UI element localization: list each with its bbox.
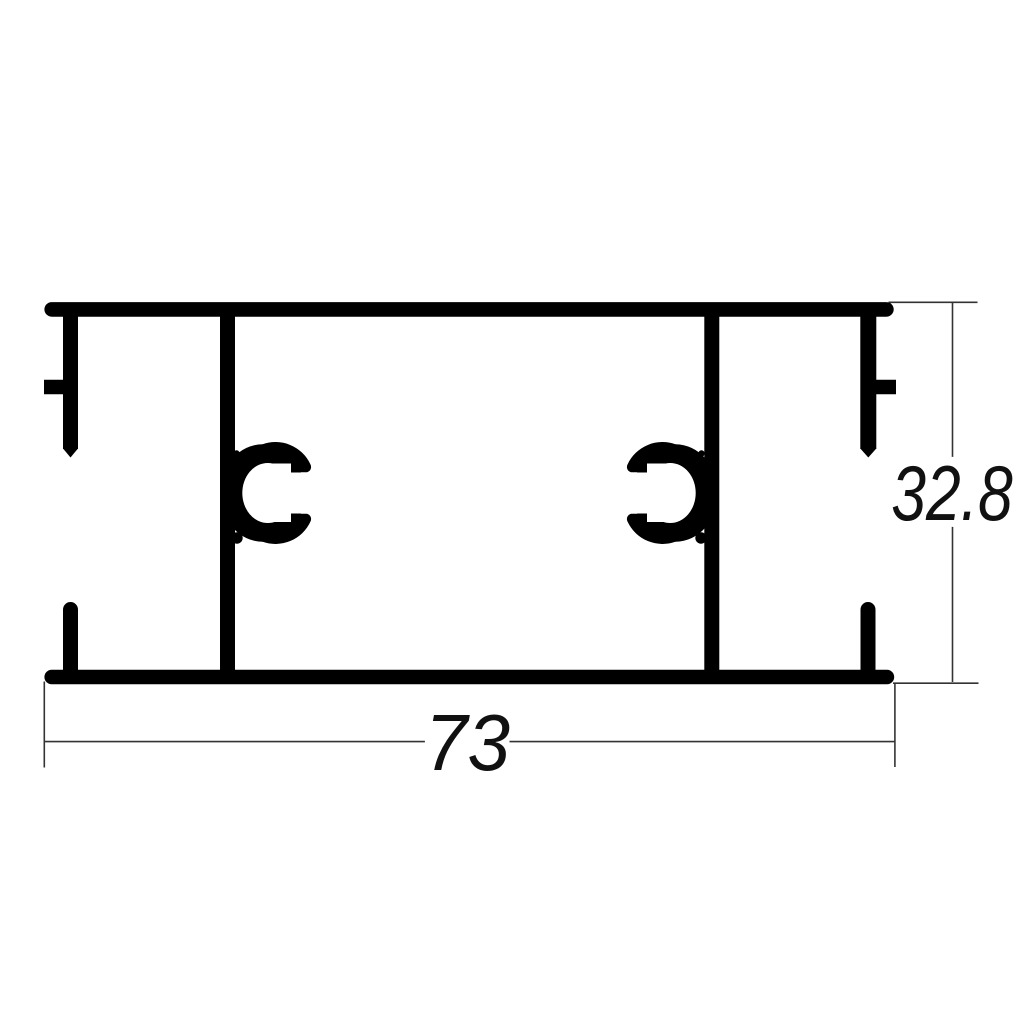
- svg-text:73: 73: [425, 698, 510, 787]
- svg-text:32.8: 32.8: [891, 449, 1013, 537]
